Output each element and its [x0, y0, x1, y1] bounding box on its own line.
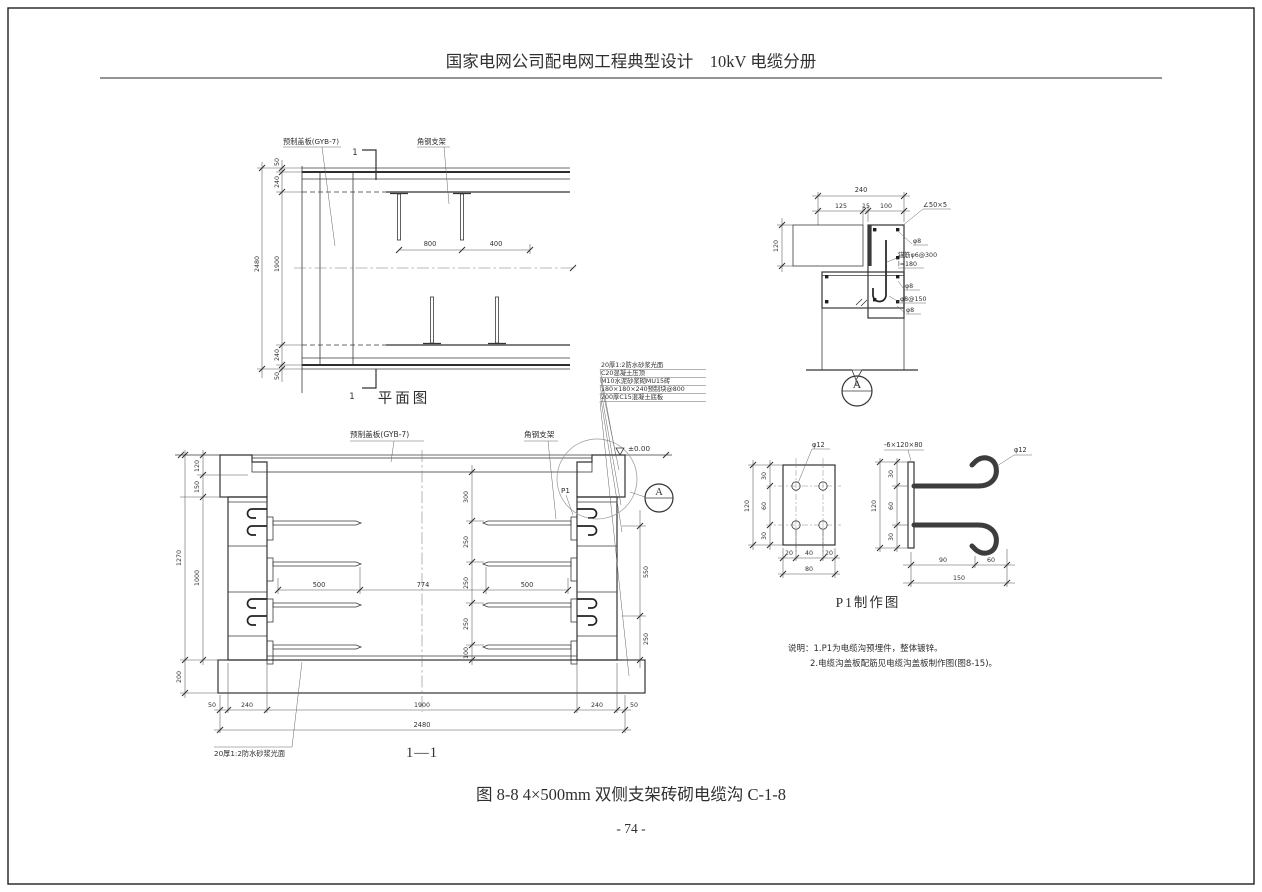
section-callout-2: C20混凝土压顶	[601, 368, 646, 377]
p1-dim-hv2: 60	[888, 502, 895, 510]
plan-dim-total: 2480	[254, 256, 261, 272]
section-title: 1—1	[406, 745, 438, 761]
p1-dim-pv2: 60	[761, 502, 768, 510]
section-dim-inner-height: 1270	[176, 550, 183, 566]
detail-rebar-bottom-label: φ8	[906, 307, 914, 314]
section-callout-3: M10水泥砂浆砌MU15砖	[601, 376, 671, 385]
section-bracket-label: 角钢支架	[524, 429, 555, 439]
section-dim-wall-left: 240	[241, 702, 253, 709]
section-callout-4: 180×180×240预制块@800	[601, 384, 685, 393]
detail-edge-angle	[868, 225, 872, 266]
section-dim-wall-height: 1000	[194, 570, 201, 586]
section-dim-lip-right: 50	[630, 702, 638, 709]
p1-dim-hv3: 30	[888, 533, 895, 541]
detail-rebar-top-label: φ8	[913, 238, 921, 245]
section-dim-shelf-right: 500	[521, 581, 534, 589]
p1-dim-hv1: 30	[888, 470, 895, 478]
detail-angle-label: ∠50×5	[923, 201, 947, 209]
p1-dim-ph3: 20	[825, 550, 833, 557]
section-dim-top-gap: 300	[463, 491, 470, 503]
section-dim-hook-bottom: 250	[643, 633, 650, 645]
section-dim-lip-left: 50	[208, 702, 216, 709]
section-dim-s2: 250	[463, 577, 470, 589]
plan-dim-wall-top: 240	[274, 176, 281, 188]
section-cover-plate-label: 预制盖板(GYB-7)	[350, 429, 409, 439]
plan-dim-wall-bottom: 240	[274, 349, 281, 361]
plan-cover-plate-label: 预制盖板(GYB-7)	[283, 137, 339, 146]
detail-anchor-label-1: 锚筋φ6@300	[898, 250, 937, 259]
plan-dim-inner: 1900	[274, 256, 281, 272]
detail-rebar-mid-label: φ8	[905, 283, 913, 290]
drawing-canvas: 国家电网公司配电网工程典型设计 10kV 电缆分册	[0, 0, 1262, 892]
p1-dim-pv1: 30	[761, 472, 768, 480]
section-dim-coping: 150	[194, 481, 201, 493]
detail-dim-c: 100	[880, 203, 892, 210]
plan-view-title: 平面图	[378, 391, 431, 407]
p1-title: P1制作图	[836, 595, 901, 610]
section-dim-clear: 774	[417, 581, 430, 589]
p1-dim-pv: 120	[744, 500, 751, 512]
p1-plate-size-label: -6×120×80	[884, 441, 923, 449]
figure-caption: 图 8-8 4×500mm 双侧支架砖砌电缆沟 C-1-8	[476, 785, 786, 804]
section-dim-cover: 120	[194, 460, 201, 472]
page-number: - 74 -	[616, 821, 646, 836]
plan-section-mark-top: 1	[352, 148, 357, 158]
detail-dim-a: 125	[835, 203, 847, 210]
p1-plate-hole-label: φ12	[812, 441, 825, 449]
section-floor-label: 20厚1:2防水砂浆光面	[214, 749, 285, 758]
note-line-2: 2.电缆沟盖板配筋见电缆沟盖板制作图(图8-15)。	[810, 658, 997, 669]
note-line-1: 说明：1.P1为电缆沟预埋件，整体镀锌。	[788, 643, 943, 654]
plan-dim-spacing: 800	[424, 240, 437, 248]
section-dim-s1: 250	[463, 536, 470, 548]
detail-stirrup-label: φ8@150	[900, 295, 926, 303]
detail-anchor-label-2: l=180	[898, 261, 917, 268]
section-dim-hook-span: 550	[643, 566, 650, 578]
plan-dim-offset: 400	[490, 240, 503, 248]
section-dim-s3: 250	[463, 618, 470, 630]
p1-dim-hh2: 60	[987, 557, 995, 564]
p1-dim-ph1: 20	[785, 550, 793, 557]
header-title: 国家电网公司配电网工程典型设计 10kV 电缆分册	[446, 52, 817, 71]
section-dim-shelf-left: 500	[313, 581, 326, 589]
detail-dim-height: 120	[773, 240, 780, 252]
section-dim-slab: 200	[176, 671, 183, 683]
p1-dim-pv3: 30	[761, 532, 768, 540]
detail-bubble-letter: A	[853, 377, 862, 391]
section-callout-1: 20厚1:2防水砂浆光面	[601, 360, 663, 369]
plan-bracket-label: 角钢支架	[417, 137, 446, 146]
plan-dim-lip-bottom: 50	[274, 372, 281, 380]
p1-dim-hv: 120	[871, 500, 878, 512]
section-dim-total-width: 2480	[414, 721, 431, 729]
section-level-label: ±0.00	[628, 444, 650, 453]
section-dim-s4: 100	[463, 647, 470, 659]
plan-dim-lip-top: 50	[274, 158, 281, 166]
p1-dim-ph: 80	[805, 566, 813, 573]
section-p1-label: P1	[561, 486, 570, 495]
section-bubble-letter: A	[655, 487, 663, 498]
plan-section-mark-bottom: 1	[349, 392, 354, 402]
section-dim-wall-right: 240	[591, 702, 603, 709]
drawing-page: 国家电网公司配电网工程典型设计 10kV 电缆分册	[0, 0, 1262, 892]
section-callout-5: 200厚C15混凝土底板	[601, 392, 664, 401]
p1-dim-ph2: 40	[805, 550, 813, 557]
detail-dim-b: 15	[862, 203, 870, 210]
section-dim-inner-width: 1900	[414, 702, 430, 709]
p1-dim-hh1: 90	[939, 557, 947, 564]
p1-hook-label: φ12	[1014, 446, 1027, 454]
detail-dim-total: 240	[855, 186, 868, 194]
p1-dim-hh: 150	[953, 575, 965, 582]
